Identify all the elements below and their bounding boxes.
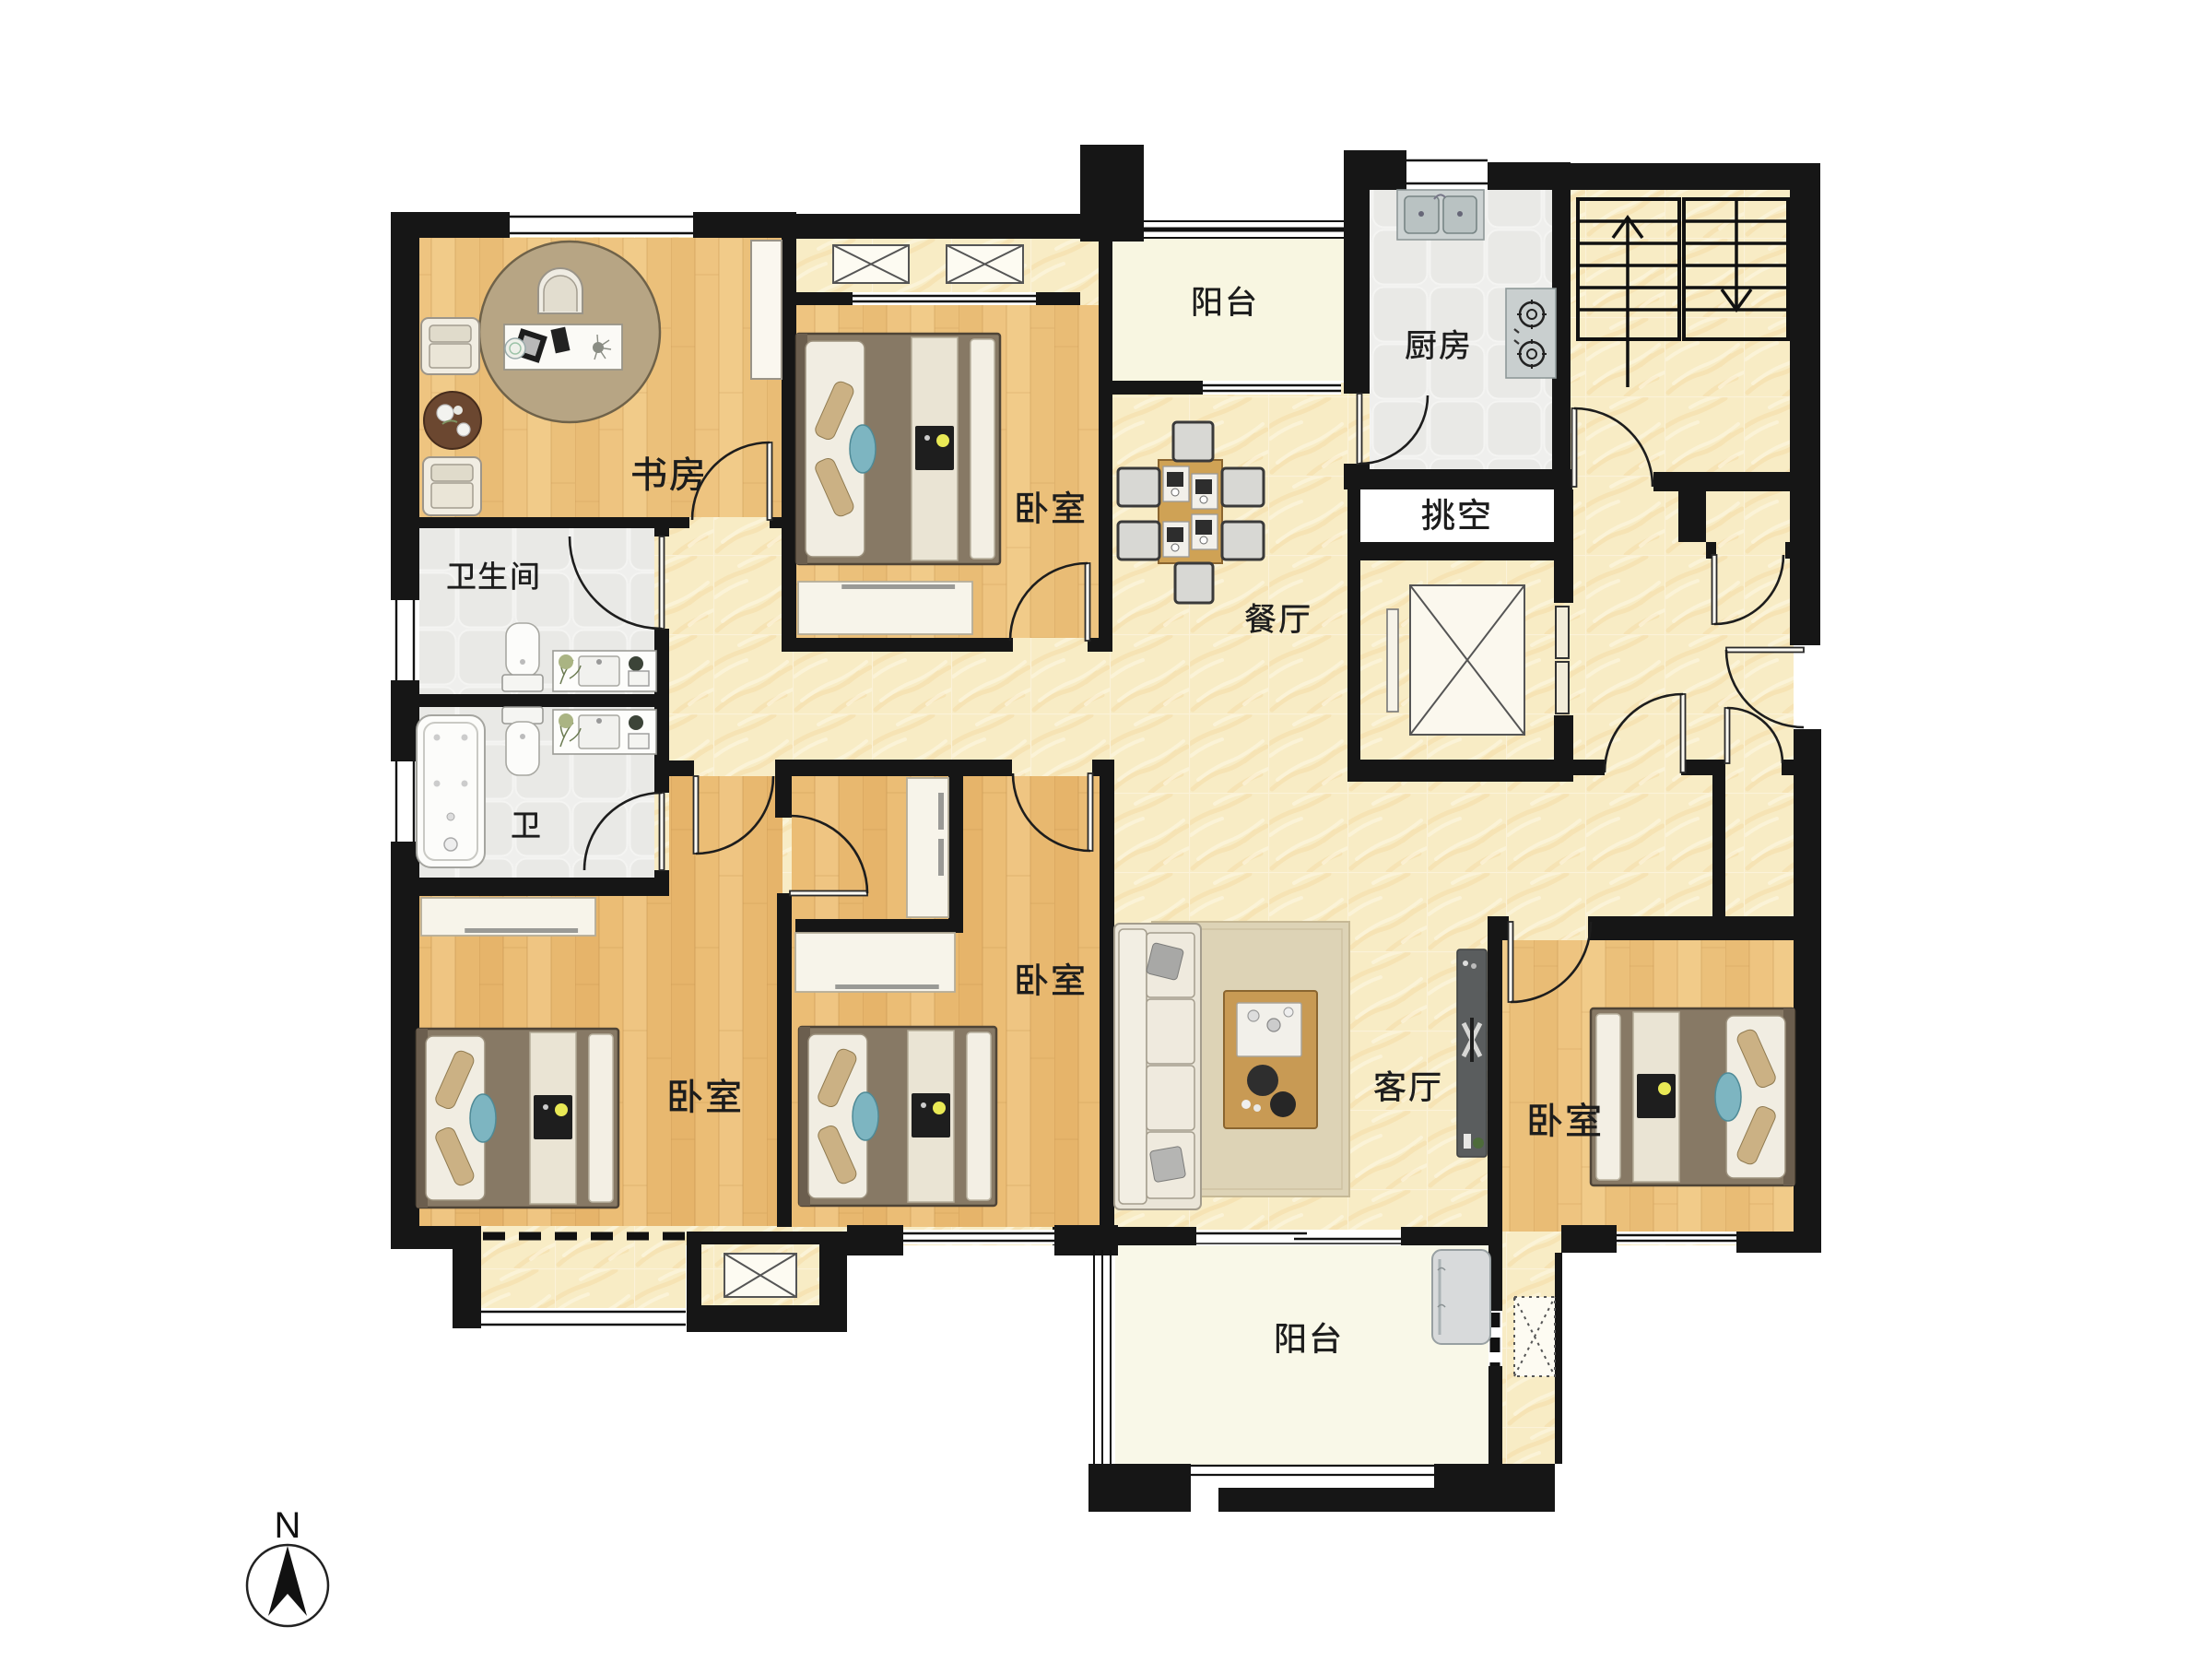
- svg-text:N: N: [275, 1505, 301, 1546]
